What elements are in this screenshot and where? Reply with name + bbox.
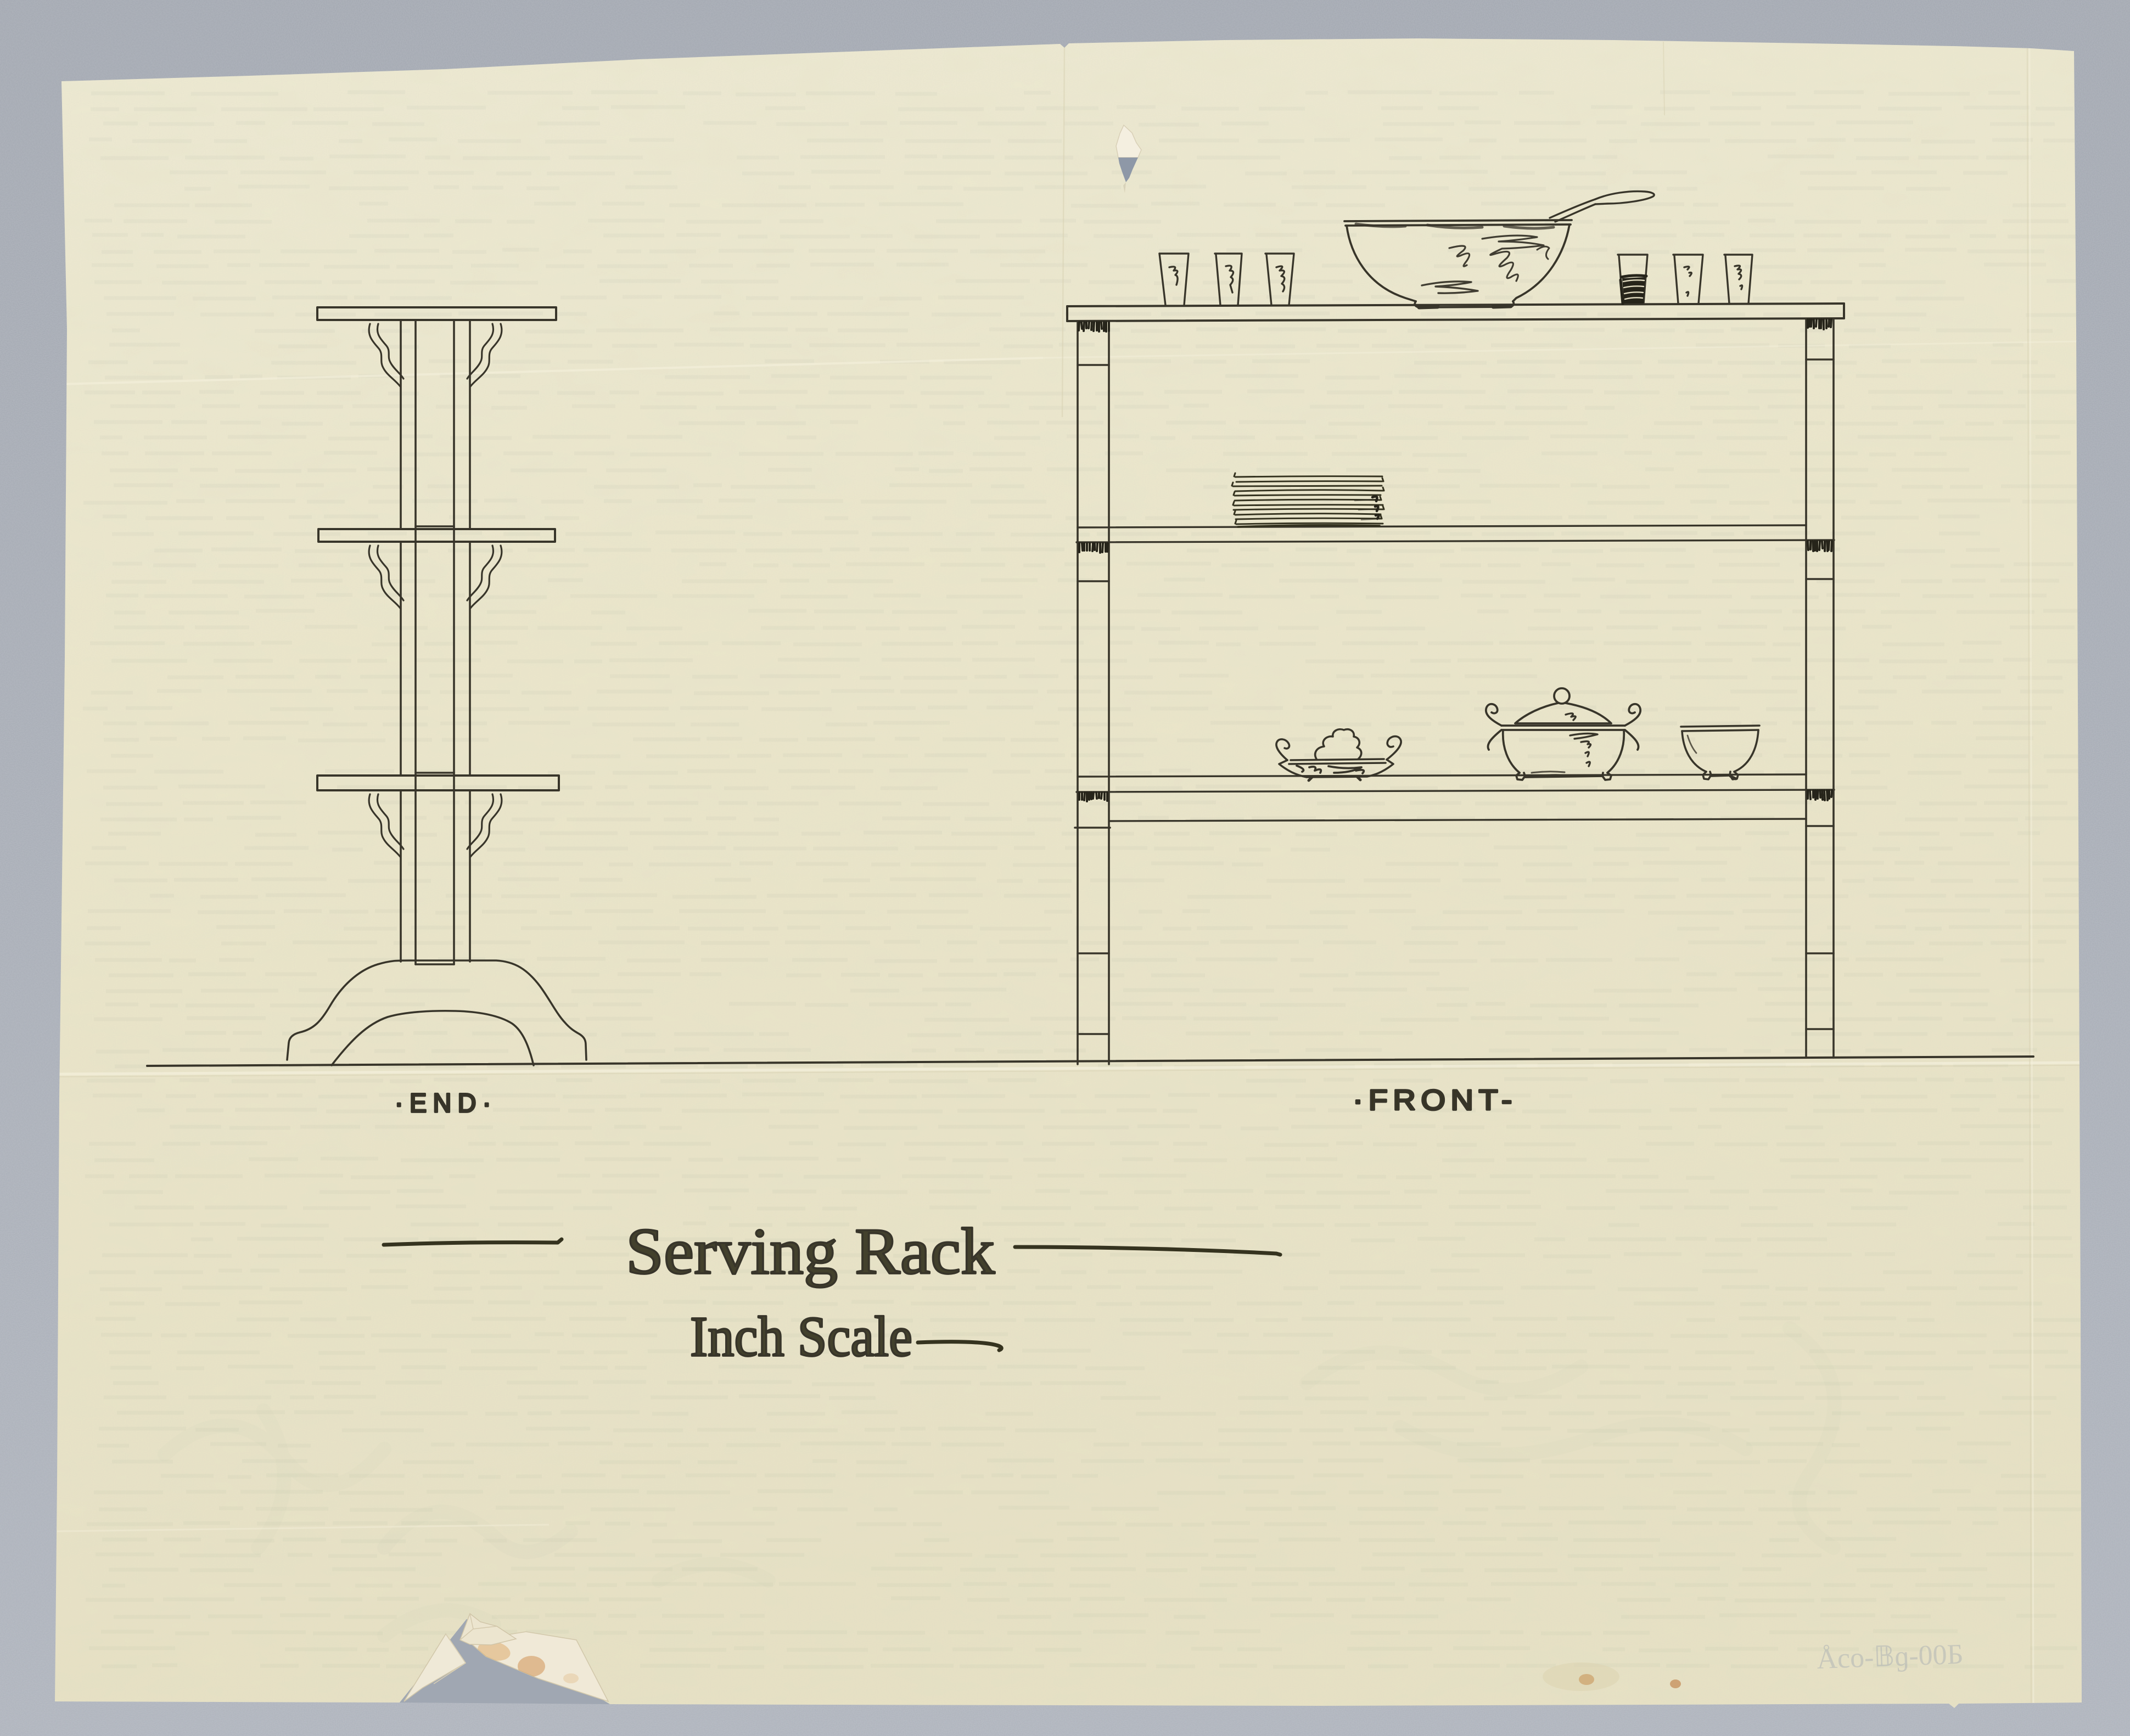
svg-text:·END·: ·END·: [395, 1089, 497, 1118]
svg-text:Åco-𝔹ɡ-00Ƃ: Åco-𝔹ɡ-00Ƃ: [1816, 1639, 1964, 1675]
svg-text:Inch Scale: Inch Scale: [690, 1305, 912, 1368]
svg-text:·FRONT-: ·FRONT-: [1353, 1085, 1517, 1116]
svg-text:Serving Rack: Serving Rack: [626, 1215, 995, 1288]
